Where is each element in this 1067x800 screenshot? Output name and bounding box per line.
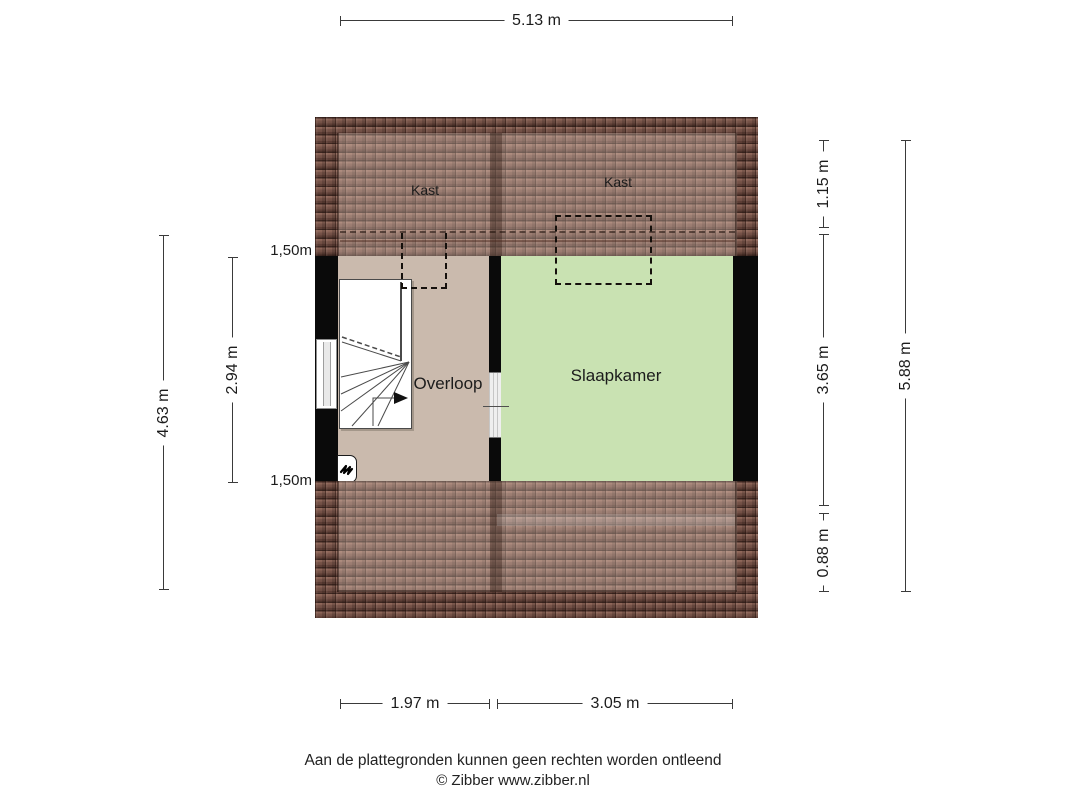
roof-bottom-inner-wall-bottom: [337, 590, 737, 592]
dim-left-outer-label: 4.63 m: [155, 380, 173, 445]
knee-wall-line: [340, 240, 735, 242]
knee-wall-dashed-line: [340, 231, 735, 233]
dim-bottom-left: 1.97 m: [340, 703, 490, 704]
dim-left-inner: 2.94 m: [232, 257, 233, 483]
floorplan-canvas: 5.13 m Kast Kast: [0, 0, 1067, 800]
interior-door-line: [483, 406, 509, 407]
dim-right-upper: 1.15 m: [823, 140, 824, 228]
roof-top-divider-wall: [490, 133, 502, 256]
ventilation-unit: [337, 455, 357, 483]
roof-bottom: [315, 481, 758, 618]
dim-right-middle: 3.65 m: [823, 234, 824, 506]
dim-right-lower: 0.88 m: [823, 513, 824, 592]
window-left-wall: [316, 339, 337, 409]
clearance-label-bottom: 1,50m: [258, 472, 312, 489]
dim-right-upper-label: 1.15 m: [815, 152, 833, 217]
dim-left-outer: 4.63 m: [163, 235, 164, 590]
dim-left-inner-label: 2.94 m: [224, 338, 242, 403]
clearance-label-top: 1,50m: [258, 242, 312, 259]
dim-top-width-label: 5.13 m: [504, 12, 569, 30]
wall-right: [733, 256, 758, 481]
room-label-kast-right: Kast: [588, 174, 648, 190]
dim-bottom-left-label: 1.97 m: [383, 695, 448, 713]
staircase: [339, 279, 412, 429]
dim-right-outer-label: 5.88 m: [897, 334, 915, 399]
staircase-drawing: [340, 280, 410, 427]
dim-right-outer: 5.88 m: [905, 140, 906, 592]
closet-outline-left: [401, 233, 447, 289]
roof-bottom-divider-wall: [490, 481, 502, 592]
closet-outline-right: [555, 215, 652, 285]
dim-bottom-right: 3.05 m: [497, 703, 733, 704]
wall-divider-lower: [489, 438, 501, 481]
ventilation-icon: [338, 456, 355, 481]
dim-right-lower-label: 0.88 m: [815, 520, 833, 585]
roof-bottom-knee-window: [497, 514, 735, 526]
wall-divider-upper: [489, 256, 501, 372]
dim-right-middle-label: 3.65 m: [815, 338, 833, 403]
roof-bottom-inner-wall-left: [337, 481, 339, 592]
dim-bottom-right-label: 3.05 m: [583, 695, 648, 713]
roof-bottom-interior: [338, 481, 737, 592]
roof-top-inner-wall-left: [337, 133, 339, 256]
room-label-overloop: Overloop: [398, 374, 498, 394]
room-label-kast-left: Kast: [395, 182, 455, 198]
roof-top: Kast Kast: [315, 117, 758, 256]
footer-disclaimer: Aan de plattegronden kunnen geen rechten…: [13, 752, 1013, 770]
roof-bottom-inner-wall-right: [735, 481, 737, 592]
roof-top-inner-wall-right: [735, 133, 737, 256]
room-label-slaapkamer: Slaapkamer: [556, 366, 676, 386]
dim-top-width: 5.13 m: [340, 20, 733, 21]
footer-copyright: © Zibber www.zibber.nl: [13, 772, 1013, 789]
